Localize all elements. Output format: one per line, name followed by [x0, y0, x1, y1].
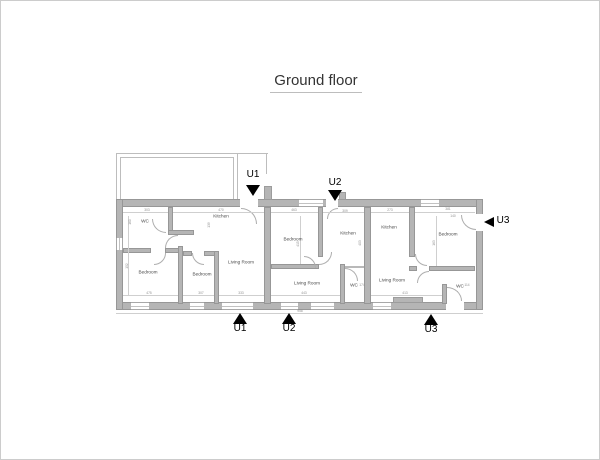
u3-right-arrow-icon	[484, 217, 494, 227]
window-bottom-2	[190, 302, 204, 310]
door-arc-u1-bedroom2	[192, 253, 204, 265]
room-label-unit3-living-room: Living Room	[379, 277, 405, 282]
window-bottom-5	[311, 302, 334, 310]
wall-u1-bedroom2-top-a	[183, 251, 192, 256]
dimension-label: 152	[125, 263, 129, 268]
window-top-2	[421, 199, 439, 207]
dimension-label: 958	[297, 309, 302, 313]
room-label-unit1-wc: WC	[141, 218, 149, 223]
door-arc-u2-living	[319, 252, 332, 265]
wall-u3-kitchen-bedroom	[409, 207, 415, 257]
door-arc-u1-entrance	[241, 208, 257, 224]
dimension-line	[123, 212, 168, 213]
floor-plan: WCKitchenBedroomBedroomLiving RoomBedroo…	[1, 1, 600, 460]
marker-label-u3-bottom: U3	[423, 324, 439, 335]
dimension-line	[415, 212, 475, 213]
room-label-unit2-wc: WC	[350, 282, 358, 287]
room-label-unit1-bedroom-1: Bedroom	[139, 269, 158, 274]
window-bottom-1	[131, 302, 149, 310]
u1-bottom-arrow-icon	[233, 313, 247, 324]
door-arc-u2-bedroom	[304, 256, 316, 268]
dimension-label: 174	[359, 283, 364, 287]
wall-u1-bedroom1-top-b	[165, 248, 179, 253]
wall-u3-bedroom-bottom-a	[409, 266, 417, 271]
dimension-label: 307	[198, 291, 203, 295]
dimension-label: 139	[207, 222, 211, 227]
door-arc-u3-bedroom	[417, 271, 429, 283]
window-bottom-6	[373, 302, 391, 310]
room-label-unit1-kitchen: Kitchen	[213, 213, 229, 218]
room-label-unit2-kitchen: Kitchen	[340, 230, 356, 235]
dimension-label: 463	[291, 208, 296, 212]
page: Ground floor	[0, 0, 600, 460]
terrace-outline-inner	[120, 157, 234, 200]
door-arc-u3-kitchen	[415, 254, 427, 266]
room-label-unit1-bedroom-2: Bedroom	[193, 271, 212, 276]
dimension-label: 273	[387, 208, 392, 212]
dimension-label: 163	[432, 240, 436, 245]
marker-label-u2-bottom: U2	[281, 323, 297, 334]
door-arc-u1-wc	[152, 219, 166, 233]
door-gap-u3-entrance	[476, 214, 483, 231]
door-arc-u1-hall-2	[154, 253, 166, 265]
wall-unit-divider-1	[264, 207, 271, 304]
u2-bottom-arrow-icon	[282, 313, 296, 324]
dimension-label: 333	[238, 291, 243, 295]
door-gap-bottom-right	[446, 302, 464, 310]
dimension-label: 160	[128, 219, 132, 224]
room-label-unit2-living-room: Living Room	[294, 280, 320, 285]
room-label-unit3-wc: WC	[456, 283, 464, 288]
dimension-label: 309	[342, 209, 347, 213]
annex-line-right	[266, 153, 267, 174]
wall-unit-divider-2	[364, 207, 371, 304]
dimension-label: 475	[146, 291, 151, 295]
dimension-label: 114	[464, 283, 469, 287]
wall-u3-bedroom-bottom-b	[429, 266, 475, 271]
dimension-label: 303	[144, 208, 149, 212]
dimension-label: 140	[450, 214, 455, 218]
room-label-unit3-kitchen: Kitchen	[381, 224, 397, 229]
door-arc-u1-hall-1	[165, 235, 178, 248]
dimension-label: 413	[402, 291, 407, 295]
dimension-label: 443	[301, 291, 306, 295]
wall-u1-bedroom2-right	[214, 251, 219, 304]
bottom-wall-step	[393, 297, 423, 303]
dimension-line	[371, 295, 442, 296]
u1-top-arrow-icon	[246, 185, 260, 196]
dimension-label: 403	[358, 240, 362, 245]
dimension-label: 415	[296, 241, 300, 246]
wall-exterior-left	[116, 199, 123, 310]
wall-u2-bedroom-kitchen	[318, 207, 323, 257]
dimension-line	[183, 295, 214, 296]
door-gap-u1-entrance	[240, 199, 258, 207]
window-bottom-3	[222, 302, 253, 310]
door-arc-u3-entrance	[461, 215, 476, 230]
door-arc-u2-entrance	[327, 208, 338, 219]
door-arc-bottom-right	[447, 287, 462, 301]
dimension-label: 381	[445, 207, 450, 211]
room-label-unit3-bedroom: Bedroom	[439, 231, 458, 236]
room-label-unit1-living-room: Living Room	[228, 259, 254, 264]
dimension-line	[271, 295, 340, 296]
wall-u1-hall-stub	[168, 230, 194, 235]
dimension-line	[436, 216, 437, 266]
marker-label-u2-top: U2	[327, 177, 343, 188]
u3-bottom-arrow-icon	[424, 314, 438, 325]
door-arc-u2-wc	[345, 268, 358, 281]
dimension-line	[123, 295, 178, 296]
porch-wall-stub-1	[264, 186, 272, 200]
u2-top-arrow-icon	[328, 190, 342, 201]
window-bottom-4	[281, 302, 298, 310]
dimension-line	[371, 212, 409, 213]
marker-label-u1-top: U1	[245, 169, 261, 180]
marker-label-u3-right: U3	[495, 215, 511, 226]
dimension-line	[271, 212, 318, 213]
dimension-line	[219, 295, 264, 296]
window-top-1	[299, 199, 323, 207]
dimension-label: 470	[218, 208, 223, 212]
window-left-1	[116, 238, 123, 250]
dimension-line	[128, 216, 129, 295]
marker-label-u1-bottom: U1	[232, 323, 248, 334]
annex-line-top	[238, 153, 268, 154]
